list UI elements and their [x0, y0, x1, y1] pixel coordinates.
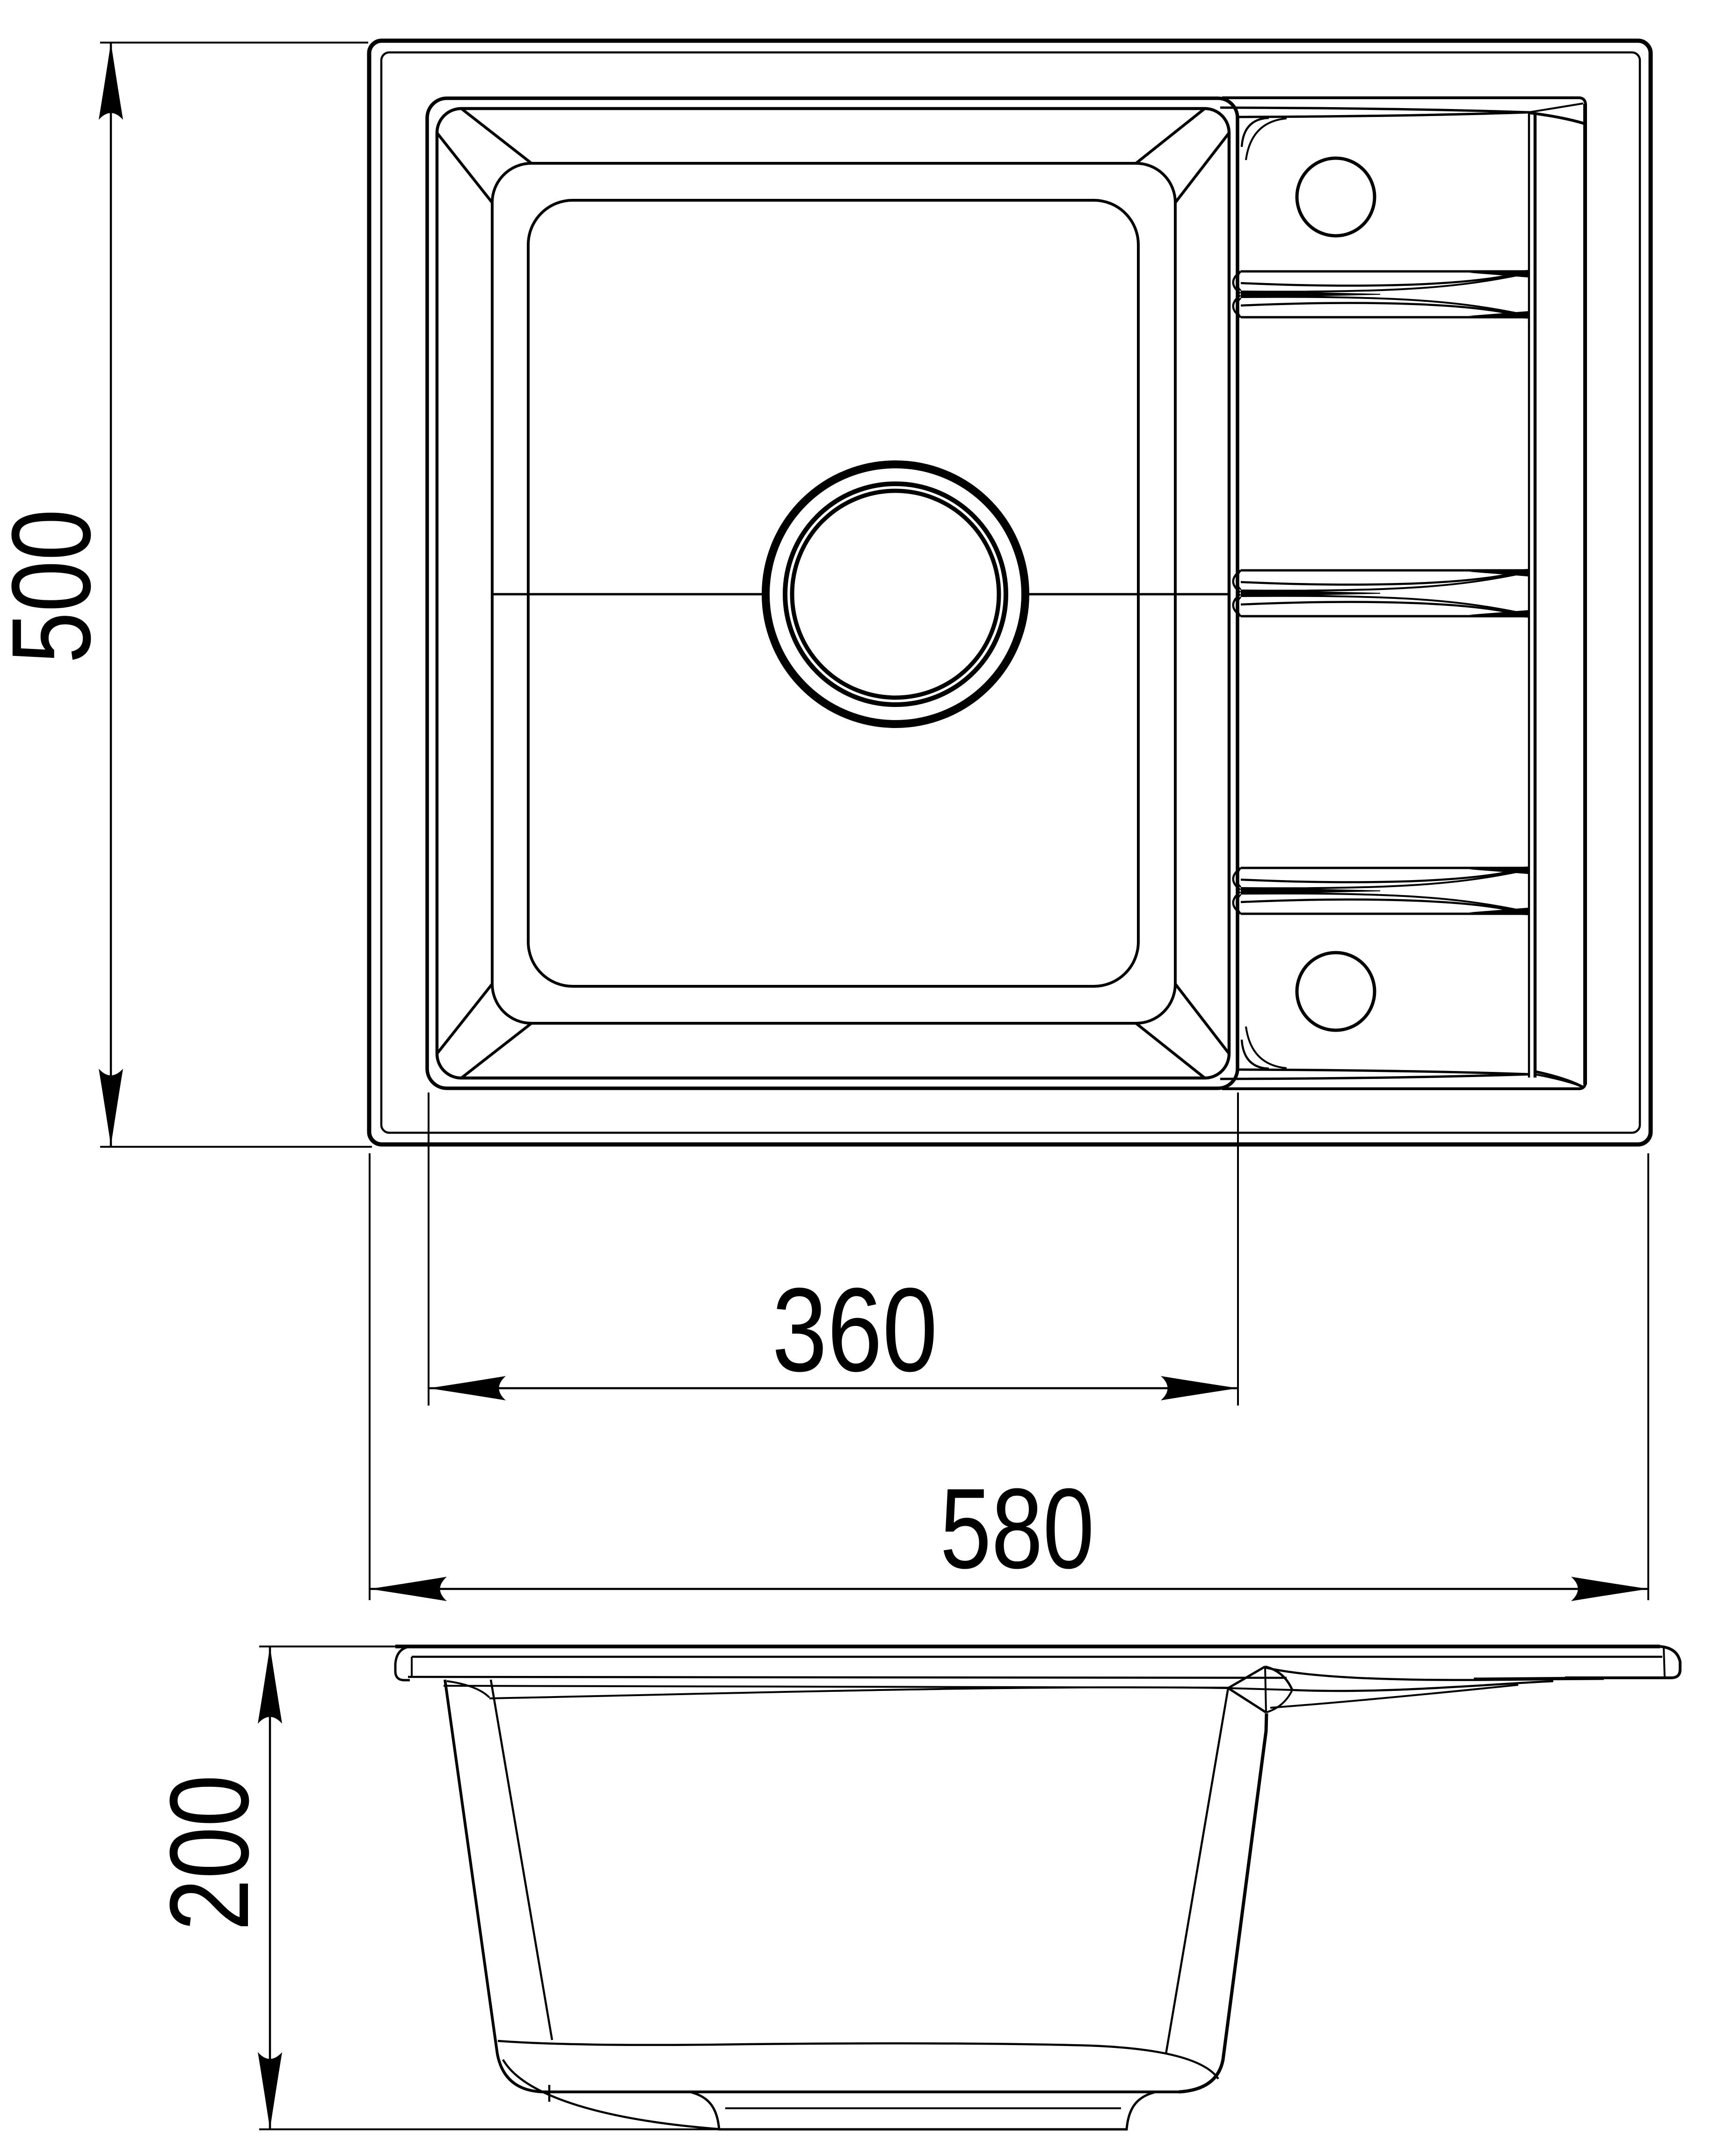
svg-text:360: 360: [772, 1263, 938, 1397]
svg-text:200: 200: [146, 1775, 272, 1931]
svg-text:500: 500: [0, 509, 114, 663]
svg-text:580: 580: [940, 1464, 1094, 1592]
